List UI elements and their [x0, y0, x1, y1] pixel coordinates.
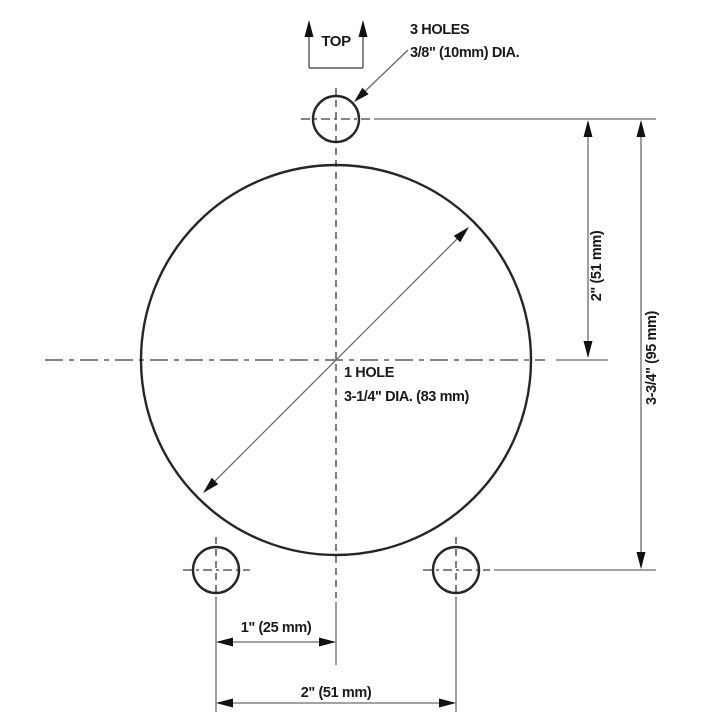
dim-label-2in-vertical: 2" (51 mm) — [589, 230, 605, 301]
large-hole-callout-line1: 1 HOLE — [344, 365, 395, 381]
small-holes-callout-line2: 3/8" (10mm) DIA. — [410, 45, 520, 61]
centerlines — [45, 88, 545, 598]
arrow-up-icon — [305, 20, 314, 37]
arrow-right-icon — [319, 638, 336, 647]
arrow-left-icon — [216, 638, 233, 647]
drilling-template-drawing: TOP 3 HOLES 3/8" (10mm) DIA. 1 HOLE 3-1/… — [0, 0, 720, 720]
large-hole-callout-line2: 3-1/4" DIA. (83 mm) — [344, 389, 470, 405]
dim-label-3-3-4in-vertical: 3-3/4" (95 mm) — [644, 310, 660, 405]
arrow-up-icon — [584, 120, 593, 137]
labels: TOP 3 HOLES 3/8" (10mm) DIA. 1 HOLE 3-1/… — [241, 22, 660, 701]
dimension-lines — [206, 50, 641, 703]
leader-line — [358, 50, 408, 98]
arrow-up-icon — [637, 120, 646, 137]
dim-label-2in-horizontal: 2" (51 mm) — [301, 685, 372, 701]
arrow-down-icon — [584, 341, 593, 358]
technical-drawing-canvas: TOP 3 HOLES 3/8" (10mm) DIA. 1 HOLE 3-1/… — [0, 0, 720, 720]
arrow-down-icon — [637, 552, 646, 569]
arrow-up-icon — [359, 20, 368, 37]
arrow-right-icon — [439, 699, 456, 708]
arrow-left-icon — [216, 699, 233, 708]
dim-label-1in-horizontal: 1" (25 mm) — [241, 620, 312, 636]
top-label: TOP — [321, 33, 351, 50]
small-holes-callout-line1: 3 HOLES — [410, 22, 470, 38]
